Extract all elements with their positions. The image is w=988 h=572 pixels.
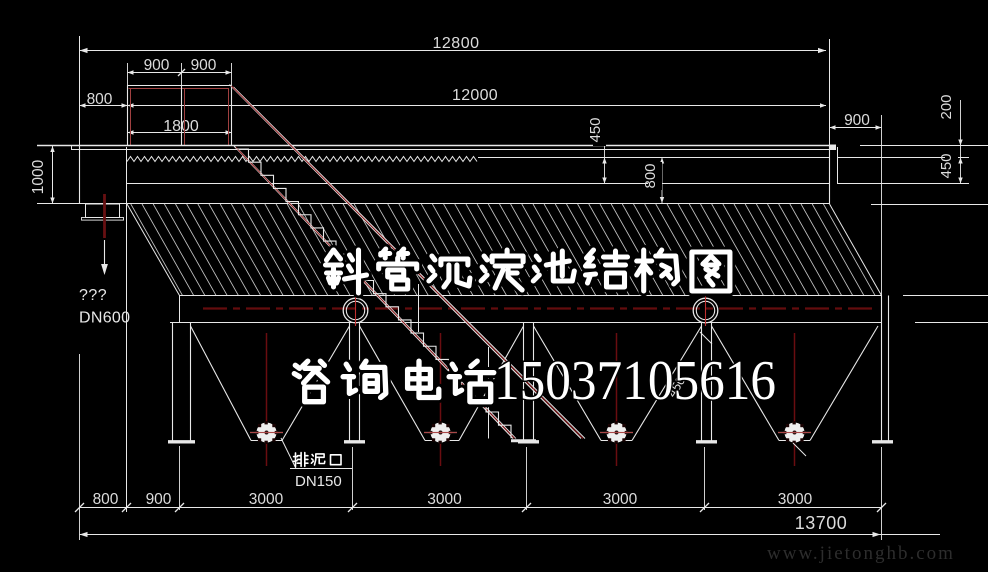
svg-text:900: 900 [144, 57, 170, 74]
svg-text:900: 900 [844, 112, 870, 129]
svg-text:12800: 12800 [433, 35, 480, 52]
svg-text:450: 450 [938, 153, 955, 178]
svg-text:1000: 1000 [30, 159, 47, 194]
svg-text:800: 800 [87, 91, 113, 108]
svg-text:800: 800 [642, 163, 659, 188]
svg-text:???: ??? [79, 287, 107, 304]
svg-text:900: 900 [191, 57, 217, 74]
svg-text:3000: 3000 [249, 491, 284, 508]
svg-text:3000: 3000 [427, 491, 462, 508]
svg-text:900: 900 [146, 491, 172, 508]
svg-text:DN600: DN600 [79, 310, 130, 327]
svg-text:800: 800 [93, 491, 119, 508]
svg-text:3000: 3000 [778, 491, 813, 508]
svg-text:450: 450 [587, 117, 604, 142]
svg-text:13700: 13700 [795, 513, 848, 533]
svg-text:15037105616: 15037105616 [494, 350, 776, 412]
svg-text:12000: 12000 [452, 87, 498, 104]
svg-text:3000: 3000 [603, 491, 638, 508]
svg-text:200: 200 [938, 94, 955, 119]
svg-text:DN150: DN150 [295, 473, 342, 490]
svg-text:www.jietonghb.com: www.jietonghb.com [767, 543, 955, 564]
